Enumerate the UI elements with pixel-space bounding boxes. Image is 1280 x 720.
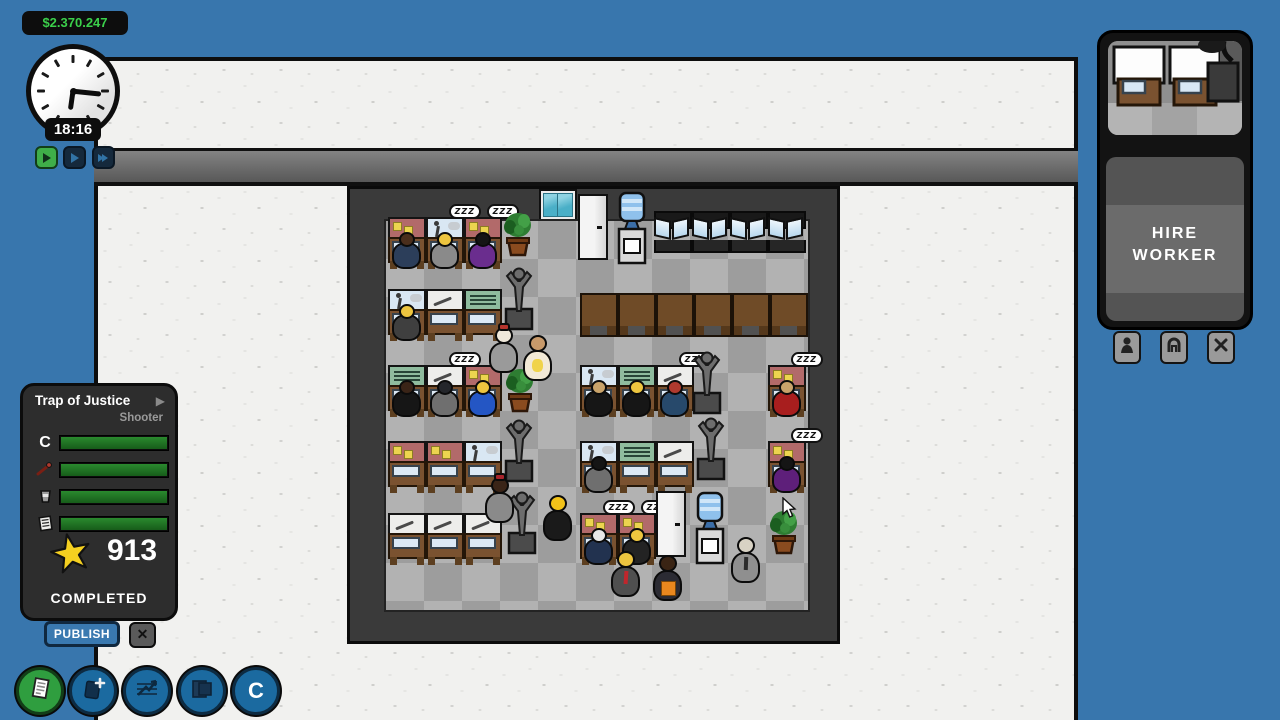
rooms-icon	[187, 674, 217, 709]
close-project-panel-button[interactable]: ✕	[129, 622, 156, 648]
office-desk[interactable]: ZZZ	[656, 365, 694, 417]
worker-head	[475, 232, 491, 247]
stat-row-sound	[33, 488, 171, 506]
table-desk[interactable]	[618, 293, 656, 337]
person-body	[485, 492, 514, 523]
sticky-note	[404, 450, 413, 459]
plant-figure	[500, 211, 536, 259]
cup-icon	[33, 488, 57, 506]
sticky-note	[469, 222, 478, 231]
new-project-button[interactable]	[69, 667, 117, 715]
clock-tick	[41, 104, 49, 111]
worker-head	[779, 456, 795, 471]
expand-arrow-icon[interactable]: ▶	[156, 394, 165, 408]
worker-head	[591, 528, 607, 543]
poster-pen	[433, 521, 452, 530]
fridge-handle	[675, 523, 680, 526]
desk-surface	[426, 533, 464, 559]
worker-head	[629, 380, 645, 395]
monitor-desk[interactable]	[692, 211, 730, 253]
poster-cloud	[602, 370, 614, 378]
worker-head	[629, 528, 645, 543]
desk-legs	[428, 333, 462, 341]
fridge-handle	[597, 226, 602, 229]
office-desk[interactable]	[426, 513, 464, 565]
worker-head	[779, 380, 795, 395]
office-room: ZZZZZZZZZZZZZZZZZZZZZZZZ	[347, 186, 840, 644]
publish-button[interactable]: PUBLISH	[44, 621, 120, 647]
office-worker[interactable]	[391, 381, 423, 417]
office-desk[interactable]: ZZZ	[768, 365, 806, 417]
poster-pen	[395, 521, 414, 530]
worker-head	[437, 380, 453, 395]
water-cooler[interactable]	[694, 491, 726, 572]
furniture-icon	[1165, 335, 1183, 360]
office-worker[interactable]	[429, 233, 461, 269]
potted-plant[interactable]	[500, 211, 536, 264]
desk-legs	[768, 240, 806, 253]
office-worker[interactable]	[391, 233, 423, 269]
clock-tick	[86, 59, 93, 67]
person-icon	[1118, 335, 1136, 360]
table-desk[interactable]	[770, 293, 808, 337]
rooms-button[interactable]	[178, 667, 226, 715]
poster-cloud	[486, 446, 498, 454]
code-bar	[59, 435, 169, 451]
art-bar	[59, 462, 169, 478]
speed-play-button[interactable]	[35, 146, 58, 169]
office-worker[interactable]	[583, 457, 615, 493]
desk-screen	[392, 537, 420, 549]
office-worker[interactable]	[583, 381, 615, 417]
desk-screen	[430, 313, 458, 325]
monitor-icon	[748, 217, 765, 240]
worker-head	[437, 232, 453, 247]
poster-lines	[394, 371, 420, 373]
office-desk[interactable]	[388, 217, 426, 269]
poster-cloud	[410, 294, 422, 302]
office-desk[interactable]: ZZZ	[768, 441, 806, 493]
statue[interactable]	[694, 415, 728, 486]
desk-screen	[392, 465, 420, 477]
desk-screen	[430, 537, 458, 549]
clock-tick	[41, 72, 49, 79]
standing-worker[interactable]	[522, 335, 554, 381]
sticky-note	[431, 446, 440, 455]
desk-screen	[468, 465, 496, 477]
standing-worker[interactable]	[484, 477, 516, 523]
clock-tick	[101, 90, 109, 93]
sticky-note	[585, 518, 594, 527]
company-label: C	[248, 678, 264, 704]
poster-pen	[433, 297, 452, 306]
desk-legs	[654, 240, 692, 253]
office-desk[interactable]: ZZZ	[426, 365, 464, 417]
table-desk[interactable]	[694, 293, 732, 337]
hire-worker-thumbnail	[1108, 41, 1242, 135]
person-head	[617, 551, 635, 568]
poster-lines	[394, 375, 420, 377]
pen-icon	[33, 461, 57, 479]
water-cooler-figure	[694, 491, 726, 567]
money-display: $2.370.247	[22, 11, 128, 35]
standing-worker[interactable]	[488, 327, 520, 373]
sticky-note	[442, 450, 451, 459]
office-worker[interactable]	[429, 381, 461, 417]
poster-lines	[624, 455, 650, 457]
water-cooler[interactable]	[616, 191, 648, 272]
outer-wall-band	[94, 148, 1078, 186]
clock-tick	[37, 90, 45, 93]
desk-legs	[620, 485, 654, 493]
desk-legs	[428, 557, 462, 565]
office-desk[interactable]	[388, 441, 426, 493]
document-plus-icon	[79, 675, 107, 708]
poster-lines	[470, 303, 496, 305]
monitor-icon	[710, 217, 727, 240]
desk-screen	[660, 465, 688, 477]
worker-head	[399, 304, 415, 319]
office-desk[interactable]	[388, 513, 426, 565]
worker-head	[667, 380, 683, 395]
notes-icon	[33, 515, 57, 533]
desk-legs	[428, 485, 462, 493]
poster-cloud	[448, 222, 460, 230]
worker-head	[591, 380, 607, 395]
poster-lines	[470, 295, 496, 297]
monitor-desk[interactable]	[654, 211, 692, 253]
poster-lines	[624, 371, 650, 373]
office-worker[interactable]	[621, 381, 653, 417]
statue[interactable]	[690, 349, 724, 420]
poster-cloud	[602, 446, 614, 454]
project-status-panel: Trap of Justice ▶ Shooter C 913 COMPLETE…	[20, 383, 178, 621]
hire-tab-worker[interactable]	[1113, 331, 1141, 364]
desk-legs	[696, 326, 730, 335]
company-button[interactable]: C	[232, 667, 280, 715]
water-cooler-figure	[616, 191, 648, 267]
person-accent	[532, 359, 543, 372]
person-head	[659, 555, 677, 572]
hire-worker-label: HIRE WORKER	[1106, 223, 1244, 267]
fridge[interactable]	[656, 491, 686, 557]
poster-lines	[624, 447, 650, 449]
office-desk[interactable]	[426, 289, 464, 341]
office-desk[interactable]	[580, 365, 618, 417]
game-screen: { "hud": { "money": "$2.370.247", "time"…	[0, 0, 1280, 720]
monitor-icon	[786, 217, 803, 240]
worker-head	[399, 232, 415, 247]
hire-tab-close[interactable]	[1207, 331, 1235, 364]
monitor-icon	[692, 217, 709, 240]
person-body	[489, 342, 518, 373]
writing-bar	[59, 516, 169, 532]
stat-row-code: C	[33, 434, 171, 452]
desk-surface	[464, 533, 502, 559]
desk-surface	[426, 461, 464, 487]
report-paper-icon	[26, 675, 54, 708]
poster-pen	[663, 449, 682, 458]
desk-screen	[468, 313, 496, 325]
office-desk[interactable]	[618, 441, 656, 493]
worker-head	[399, 380, 415, 395]
stat-row-writing	[33, 515, 171, 533]
mouse-cursor	[781, 497, 797, 524]
table-desk[interactable]	[580, 293, 618, 337]
code-label: C	[33, 434, 57, 452]
desk-legs	[390, 557, 424, 565]
speed-fastest-button[interactable]	[92, 146, 115, 169]
sound-bar	[59, 489, 169, 505]
person-hat	[498, 323, 510, 331]
desk-surface	[426, 309, 464, 335]
hire-worker-button[interactable]: HIRE WORKER	[1106, 157, 1244, 321]
person-body	[543, 510, 572, 541]
office-desk[interactable]: ZZZ	[426, 217, 464, 269]
poster-lines	[624, 451, 650, 453]
project-status-text: COMPLETED	[23, 590, 175, 606]
standing-worker[interactable]	[652, 555, 684, 601]
desk-legs	[620, 326, 654, 335]
clock-tick	[96, 104, 104, 111]
review-score: 913	[107, 534, 157, 568]
monitor-icon	[654, 217, 671, 240]
person-hat	[494, 473, 506, 481]
office-desk[interactable]	[656, 441, 694, 493]
statue-figure	[502, 265, 536, 331]
monitor-icon	[768, 217, 785, 240]
table-desk[interactable]	[732, 293, 770, 337]
office-desk[interactable]	[580, 441, 618, 493]
fast-forward-icon	[102, 154, 108, 162]
score-star-icon	[49, 532, 95, 583]
sticky-note	[623, 518, 632, 527]
desk-surface	[388, 533, 426, 559]
desk-surface	[618, 461, 656, 487]
office-desk[interactable]: ZZZ	[464, 217, 502, 269]
office-worker[interactable]	[771, 457, 803, 493]
person-accent	[744, 557, 748, 570]
monitor-icon	[672, 217, 689, 240]
play-icon	[43, 153, 51, 163]
close-icon	[1213, 337, 1229, 358]
desk-surface	[656, 461, 694, 487]
project-genre: Shooter	[120, 412, 163, 424]
desk-surface	[388, 461, 426, 487]
office-desk[interactable]	[426, 441, 464, 493]
office-desk[interactable]	[388, 289, 426, 341]
reports-button[interactable]	[16, 667, 64, 715]
sticky-note	[773, 446, 782, 455]
chart-icon	[132, 674, 162, 709]
poster-lines	[624, 375, 650, 377]
office-worker[interactable]	[467, 233, 499, 269]
office-worker[interactable]	[659, 381, 691, 417]
play-icon	[71, 153, 79, 163]
desk-legs	[772, 326, 806, 335]
sticky-note	[469, 370, 478, 379]
standing-worker[interactable]	[542, 495, 574, 541]
project-title: Trap of Justice	[35, 393, 156, 408]
person-head	[529, 335, 547, 352]
stat-row-art	[33, 461, 171, 479]
poster-lines	[470, 299, 496, 301]
clock-tick	[96, 72, 104, 79]
desk-screen	[622, 465, 650, 477]
sticky-note	[393, 446, 402, 455]
desk-legs	[466, 557, 500, 565]
clock-center	[70, 88, 77, 95]
clock-tick	[54, 59, 61, 67]
standing-worker[interactable]	[730, 537, 762, 583]
zzz-bubble: ZZZ	[791, 428, 823, 443]
clock-minute-hand	[73, 89, 101, 96]
sticky-note	[393, 222, 402, 231]
standing-worker[interactable]	[610, 551, 642, 597]
office-worker[interactable]	[467, 381, 499, 417]
person-head	[737, 537, 755, 554]
office-desk[interactable]	[618, 365, 656, 417]
office-worker[interactable]	[771, 381, 803, 417]
desk-legs	[390, 485, 424, 493]
poster-figure	[473, 450, 477, 461]
office-desk[interactable]	[388, 365, 426, 417]
desk-legs	[730, 240, 768, 253]
person-head	[549, 495, 567, 512]
desk-legs	[658, 326, 692, 335]
desk-legs	[692, 240, 730, 253]
statistics-button[interactable]	[123, 667, 171, 715]
monitor-icon	[730, 217, 747, 240]
statue-figure	[502, 417, 536, 483]
worker-head	[475, 380, 491, 395]
sticky-note	[773, 370, 782, 379]
desk-legs	[734, 326, 768, 335]
office-worker[interactable]	[391, 305, 423, 341]
worker-head	[591, 456, 607, 471]
zzz-bubble: ZZZ	[791, 352, 823, 367]
statue-figure	[694, 415, 728, 481]
speed-fast-button[interactable]	[63, 146, 86, 169]
statue-figure	[690, 349, 724, 415]
desk-screen	[430, 465, 458, 477]
hire-worker-panel: HIRE WORKER	[1097, 30, 1253, 330]
hire-tab-furniture[interactable]	[1160, 331, 1188, 364]
table-desk[interactable]	[656, 293, 694, 337]
monitor-desk[interactable]	[730, 211, 768, 253]
desk-legs	[582, 326, 616, 335]
person-accent	[661, 581, 676, 596]
time-display: 18:16	[45, 118, 101, 141]
monitor-desk[interactable]	[768, 211, 806, 253]
desk-screen	[468, 537, 496, 549]
clock-tick	[72, 55, 75, 63]
fridge[interactable]	[578, 194, 608, 260]
